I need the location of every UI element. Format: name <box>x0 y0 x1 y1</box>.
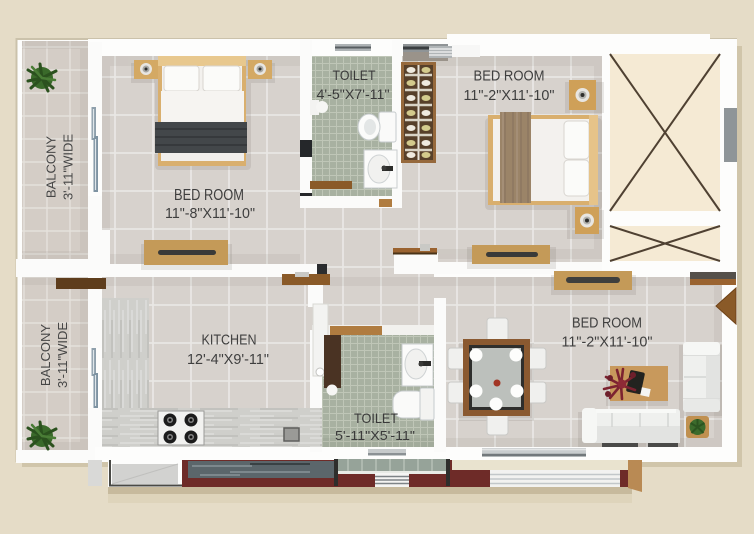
svg-text:11"-8"X11'-10": 11"-8"X11'-10" <box>165 205 255 222</box>
svg-text:TOILET: TOILET <box>354 410 398 426</box>
svg-text:5'-11"X5'-11": 5'-11"X5'-11" <box>335 428 415 443</box>
svg-text:TOILET: TOILET <box>333 67 376 83</box>
svg-text:BED ROOM: BED ROOM <box>474 68 545 85</box>
svg-text:BALCONY: BALCONY <box>44 136 59 198</box>
svg-text:3'-11"WIDE: 3'-11"WIDE <box>55 322 70 388</box>
svg-text:3'-11"WIDE: 3'-11"WIDE <box>61 134 76 200</box>
svg-text:BED ROOM: BED ROOM <box>174 187 244 204</box>
svg-text:BALCONY: BALCONY <box>38 324 53 386</box>
svg-text:11"-2"X11'-10": 11"-2"X11'-10" <box>562 334 653 351</box>
svg-text:12'-4"X9'-11": 12'-4"X9'-11" <box>187 351 269 368</box>
svg-text:11"-2"X11'-10": 11"-2"X11'-10" <box>464 87 555 104</box>
svg-text:4'-5"X7'-11": 4'-5"X7'-11" <box>317 87 390 102</box>
svg-text:BED ROOM: BED ROOM <box>572 315 642 332</box>
svg-text:KITCHEN: KITCHEN <box>202 332 257 349</box>
